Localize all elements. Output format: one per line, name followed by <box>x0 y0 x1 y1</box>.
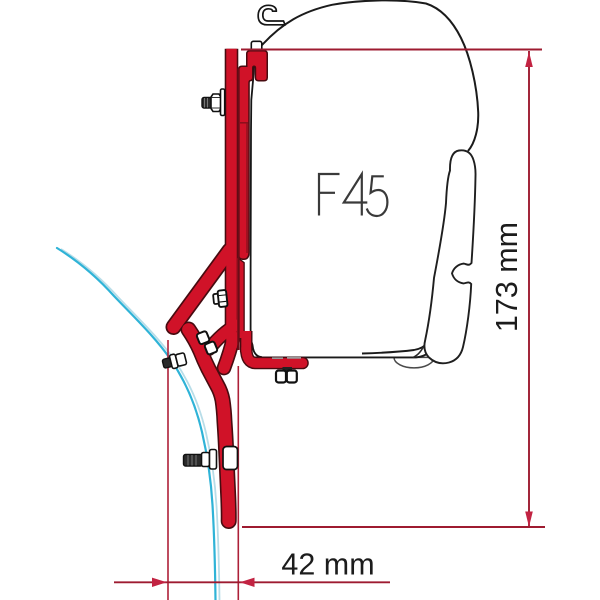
svg-text:173 mm: 173 mm <box>490 222 524 332</box>
svg-text:42 mm: 42 mm <box>281 548 374 582</box>
